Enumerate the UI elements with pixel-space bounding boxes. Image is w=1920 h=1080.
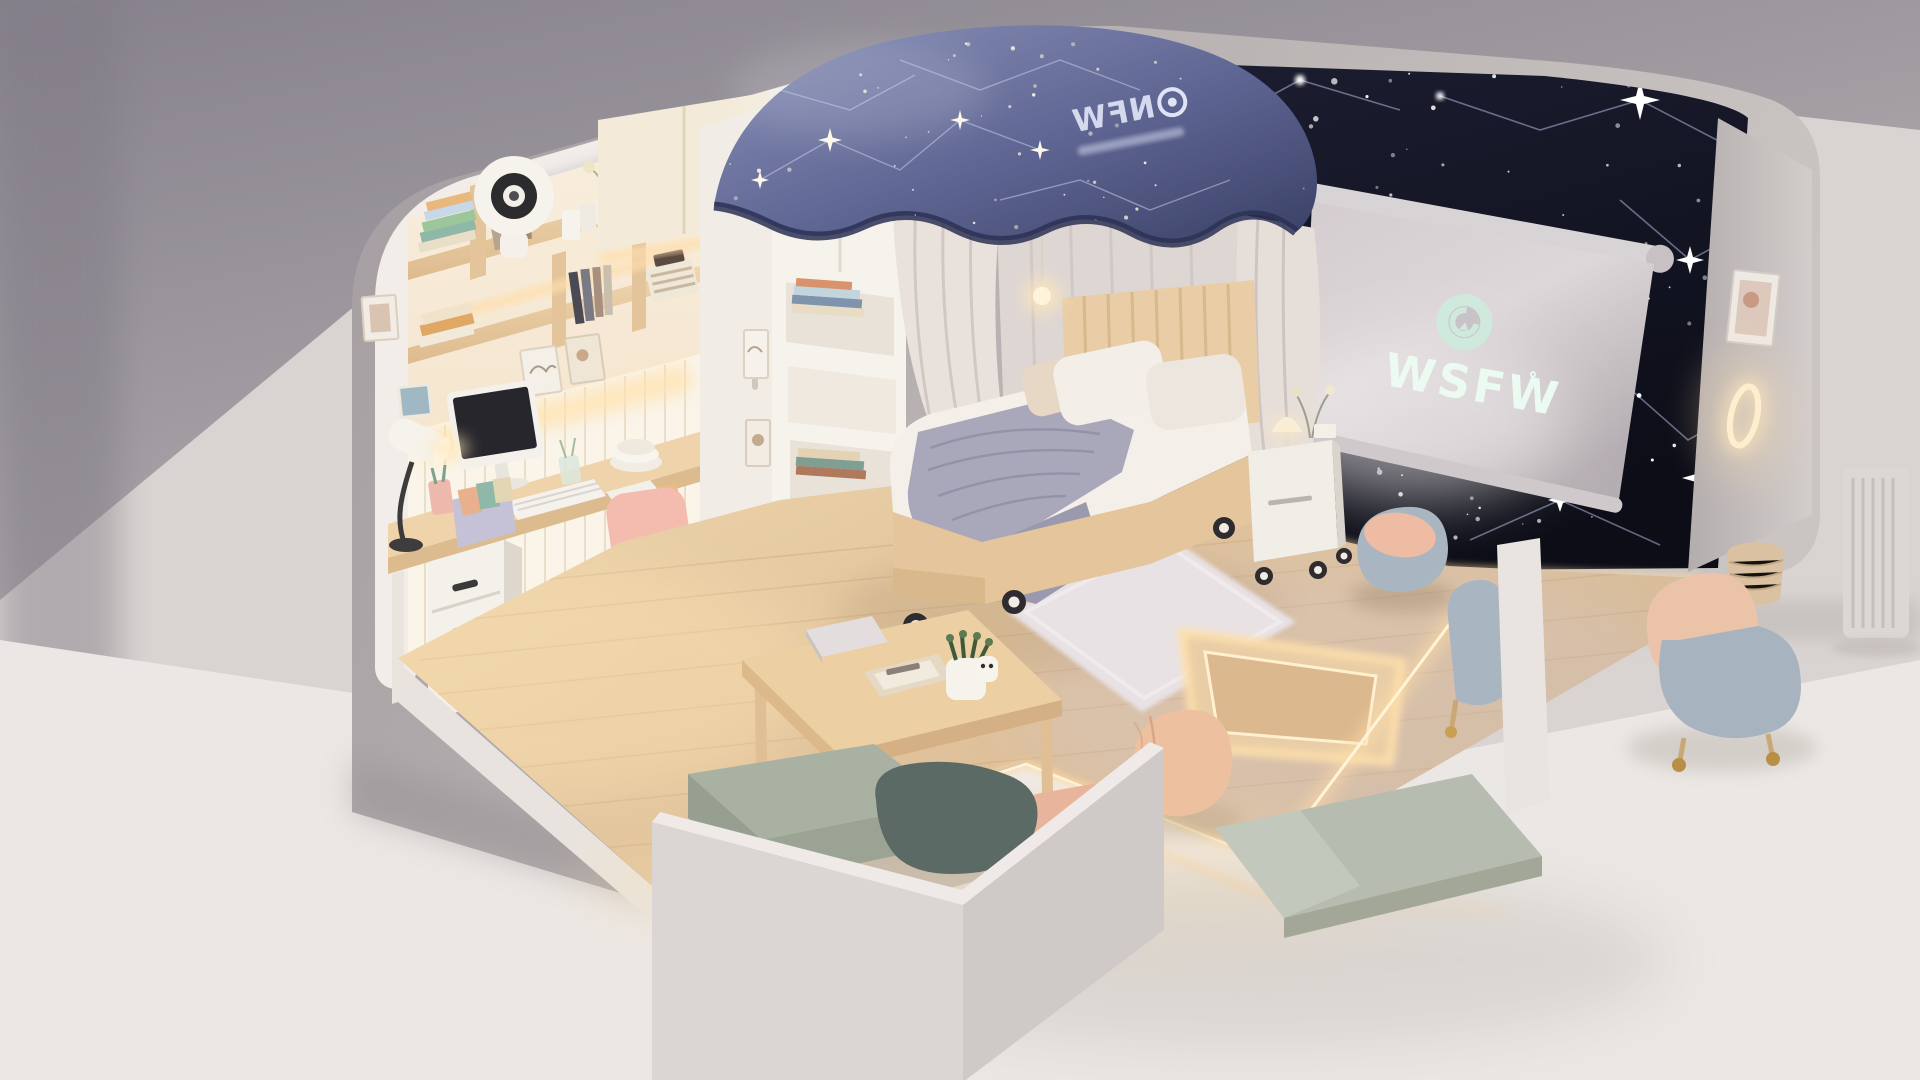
pillow-white xyxy=(1144,352,1249,433)
star-dot-icon xyxy=(734,196,738,200)
star-dot-icon xyxy=(1537,519,1541,523)
star-dot-icon xyxy=(1637,393,1642,398)
star-dot-icon xyxy=(1014,225,1018,229)
star-dot-icon xyxy=(1591,516,1593,518)
star-dot-icon xyxy=(1008,105,1011,108)
star-dot-icon xyxy=(1441,163,1444,166)
radiator-shadow xyxy=(1831,639,1920,657)
star-dot-icon xyxy=(1703,275,1708,280)
star-dot-icon xyxy=(981,115,982,116)
star-dot-icon xyxy=(1144,162,1147,165)
star-dot-icon xyxy=(1103,197,1104,198)
star-dot-icon xyxy=(1478,507,1481,510)
star-dot-icon xyxy=(973,222,976,225)
star-dot-icon xyxy=(859,73,862,76)
star-dot-icon xyxy=(1011,46,1015,50)
star-dot-icon xyxy=(1651,458,1654,461)
star-dot-icon xyxy=(1331,78,1337,84)
star-dot-icon xyxy=(1406,148,1408,150)
star-dot-icon xyxy=(1467,513,1469,515)
lamp-glow xyxy=(428,436,468,460)
star-dot-icon xyxy=(1431,105,1436,110)
star-dot-icon xyxy=(914,214,916,216)
ring-light-center xyxy=(509,191,519,201)
star-dot-icon xyxy=(1313,116,1319,122)
star-dot-icon xyxy=(729,163,731,165)
star-dot-icon xyxy=(863,89,867,93)
small-frame xyxy=(744,330,768,378)
star-dot-icon xyxy=(1071,42,1075,46)
star-dot-icon xyxy=(1508,171,1510,173)
star-dot-icon xyxy=(1154,61,1157,64)
star-dot-icon xyxy=(1562,214,1564,216)
toy-robot xyxy=(976,656,998,682)
star-dot-icon xyxy=(1018,152,1021,155)
star-dot-icon xyxy=(966,42,970,46)
star-dot-icon xyxy=(1687,322,1691,326)
star-dot-icon xyxy=(1155,184,1157,186)
star-dot-icon xyxy=(994,199,997,202)
star-dot-icon xyxy=(1492,74,1496,78)
star-dot-icon xyxy=(1389,193,1392,196)
star-dot-icon xyxy=(1391,153,1395,157)
star-dot-icon xyxy=(1375,186,1378,189)
star-dot-icon xyxy=(1475,517,1479,521)
star-dot-icon xyxy=(757,169,761,173)
star-dot-icon xyxy=(1453,535,1457,539)
star-dot-icon xyxy=(912,189,914,191)
star-dot-icon xyxy=(928,131,930,133)
cart-box xyxy=(1314,424,1336,438)
star-dot-icon xyxy=(1309,124,1313,128)
star-dot-icon xyxy=(1388,79,1392,83)
star-dot-icon xyxy=(1087,180,1089,182)
canopy-highlight xyxy=(730,40,990,140)
star-dot-icon xyxy=(1615,123,1620,128)
star-dot-icon xyxy=(877,87,879,89)
outer-wall-frame xyxy=(1727,270,1780,346)
bedroom-diorama-render: WSFW ˚ xyxy=(0,0,1920,1080)
radiator xyxy=(1831,468,1920,657)
star-dot-icon xyxy=(1606,164,1609,167)
star-dot-icon xyxy=(1303,188,1305,190)
star-dot-icon xyxy=(1697,199,1701,203)
star-dot-icon xyxy=(1040,54,1044,58)
star-dot-icon xyxy=(1408,73,1410,75)
star-dot-icon xyxy=(1365,95,1368,98)
star-dot-icon xyxy=(1672,444,1676,448)
star-dot-icon xyxy=(1033,84,1037,88)
star-dot-icon xyxy=(1678,164,1681,167)
star-dot-icon xyxy=(948,59,949,60)
star-dot-icon xyxy=(953,54,956,57)
star-dot-icon xyxy=(1470,496,1474,500)
star-dot-icon xyxy=(1561,86,1563,88)
star-dot-icon xyxy=(1522,523,1524,525)
shelf-divider xyxy=(552,251,566,349)
pen-cup xyxy=(428,479,455,516)
star-dot-icon xyxy=(1135,208,1138,211)
star-dot-icon xyxy=(1063,194,1065,196)
star-dot-icon xyxy=(1032,93,1035,96)
star-dot-icon xyxy=(1093,181,1096,184)
star-dot-icon xyxy=(1096,68,1099,71)
star-dot-icon xyxy=(1669,286,1671,288)
star-dot-icon xyxy=(787,168,791,172)
sconce-glow xyxy=(1694,346,1794,486)
star-dot-icon xyxy=(894,165,896,167)
star-dot-icon xyxy=(1180,78,1182,80)
star-dot-icon xyxy=(905,137,907,139)
star-dot-icon xyxy=(1124,216,1128,220)
